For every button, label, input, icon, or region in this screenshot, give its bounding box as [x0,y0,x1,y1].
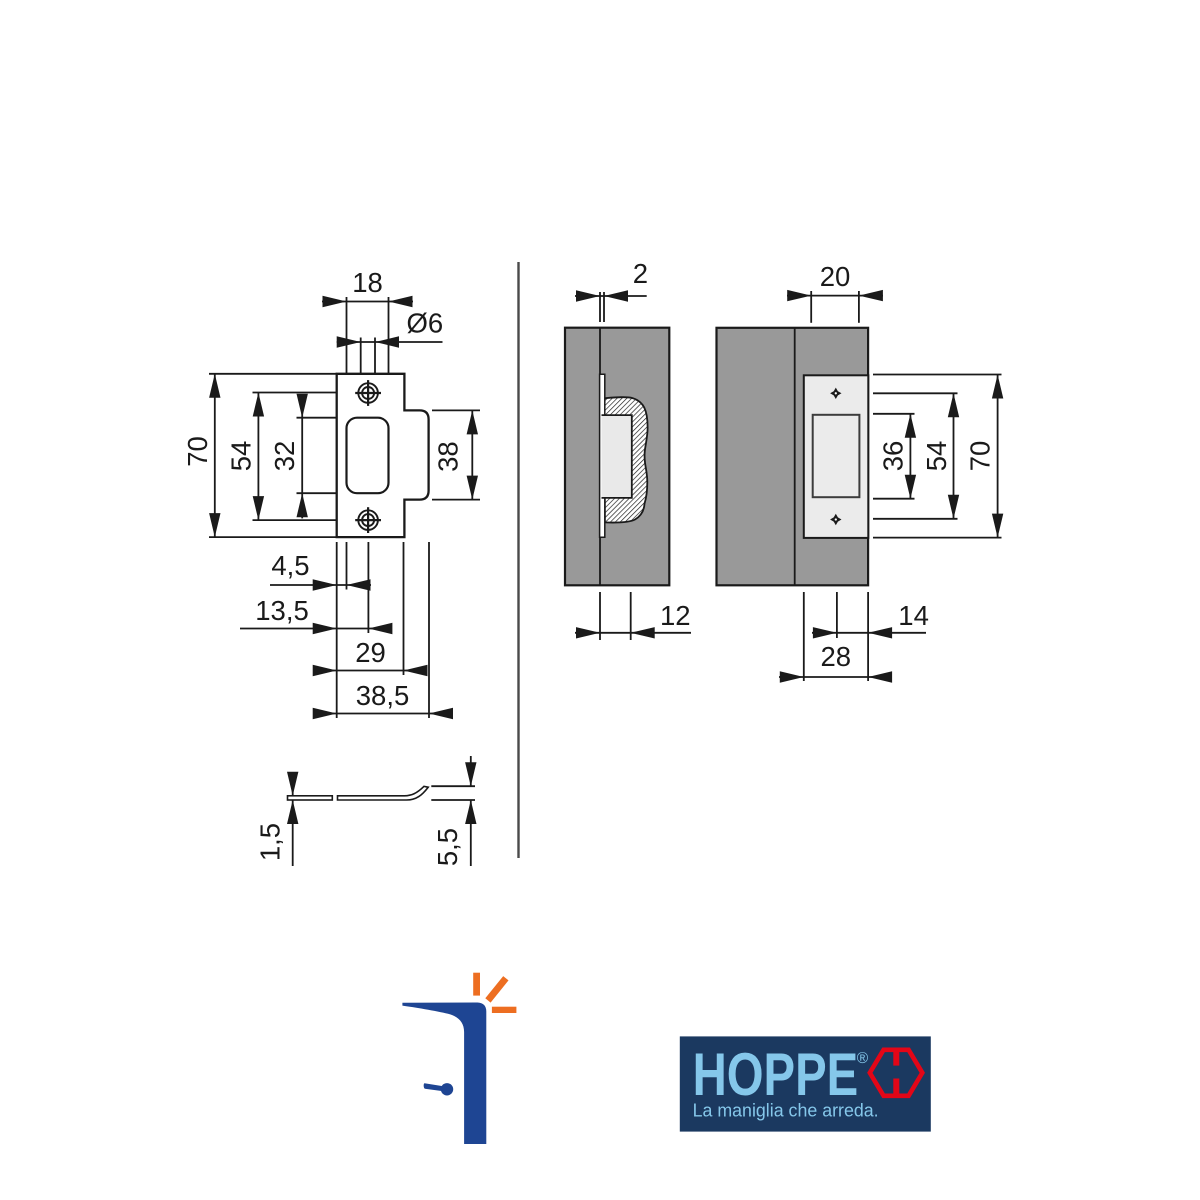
svg-text:38,5: 38,5 [356,680,410,711]
svg-text:29: 29 [355,637,386,668]
svg-text:14: 14 [898,600,929,631]
svg-text:La maniglia che arreda.: La maniglia che arreda. [693,1100,879,1121]
svg-text:38: 38 [432,441,463,472]
svg-text:70: 70 [182,436,213,467]
svg-text:70: 70 [965,441,996,472]
svg-text:20: 20 [820,261,851,292]
svg-text:18: 18 [352,267,383,298]
svg-text:12: 12 [660,600,691,631]
svg-text:28: 28 [821,641,852,672]
svg-text:36: 36 [878,441,909,472]
svg-text:54: 54 [921,441,952,472]
svg-text:54: 54 [226,441,257,472]
svg-text:4,5: 4,5 [271,550,309,581]
svg-text:5,5: 5,5 [432,828,463,866]
svg-text:Ø6: Ø6 [406,308,443,339]
svg-text:®: ® [857,1050,869,1067]
svg-text:13,5: 13,5 [255,595,309,626]
svg-text:32: 32 [269,441,300,472]
svg-text:2: 2 [633,258,648,289]
svg-text:1,5: 1,5 [255,823,286,861]
svg-text:HOPPE: HOPPE [693,1041,859,1108]
